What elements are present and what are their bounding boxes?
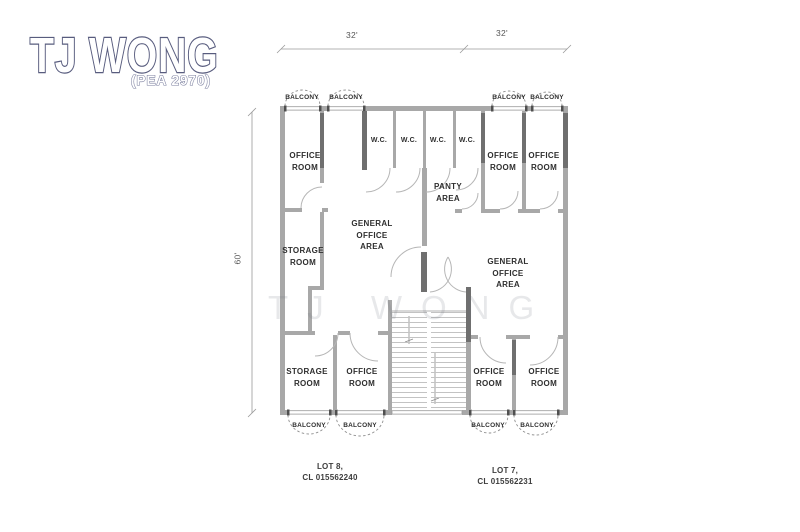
wc-label: W.C.: [430, 136, 446, 145]
stair-flight-right: [431, 312, 466, 409]
general-office-area-label: GENERAL OFFICE AREA: [487, 256, 528, 291]
balcony-label: BALCONY: [492, 94, 526, 102]
office-room-label: OFFICE ROOM: [528, 366, 559, 389]
door-arc: [301, 187, 322, 208]
balcony-label: BALCONY: [471, 422, 505, 430]
balcony-label: BALCONY: [343, 422, 377, 430]
general-office-area-label: GENERAL OFFICE AREA: [351, 218, 392, 253]
logo: TJ WONG (PEA 2970): [30, 29, 218, 88]
floor-plan-drawing: TJ WONG (PEA 2970): [0, 0, 800, 532]
office-room-label: OFFICE ROOM: [473, 366, 504, 389]
floor-plan-page: TJ WONG (PEA 2970): [0, 0, 800, 532]
stair-flight-left: [392, 312, 427, 409]
watermark-text: TJ WONG: [268, 291, 553, 324]
balcony-label: BALCONY: [329, 94, 363, 102]
balcony-label: BALCONY: [530, 94, 564, 102]
lot-8-title: LOT 8, CL 015562240: [302, 462, 357, 483]
balcony-label: BALCONY: [520, 422, 554, 430]
dim-side: 60': [234, 253, 243, 265]
dim-top-right: 32': [496, 29, 508, 38]
wc-label: W.C.: [371, 136, 387, 145]
panty-area-label: PANTY AREA: [434, 181, 462, 204]
balcony-label: BALCONY: [285, 94, 319, 102]
office-room-label: OFFICE ROOM: [487, 150, 518, 173]
office-room-label: OFFICE ROOM: [528, 150, 559, 173]
wc-label: W.C.: [401, 136, 417, 145]
dim-top-left: 32': [346, 31, 358, 40]
storage-room-label: STORAGE ROOM: [282, 245, 324, 268]
lot-7-title: LOT 7, CL 015562231: [477, 466, 532, 487]
wc-label: W.C.: [459, 136, 475, 145]
office-room-label: OFFICE ROOM: [289, 150, 320, 173]
logo-registration: (PEA 2970): [131, 73, 211, 88]
storage-room-label: STORAGE ROOM: [286, 366, 328, 389]
balcony-label: BALCONY: [292, 422, 326, 430]
office-room-label: OFFICE ROOM: [346, 366, 377, 389]
